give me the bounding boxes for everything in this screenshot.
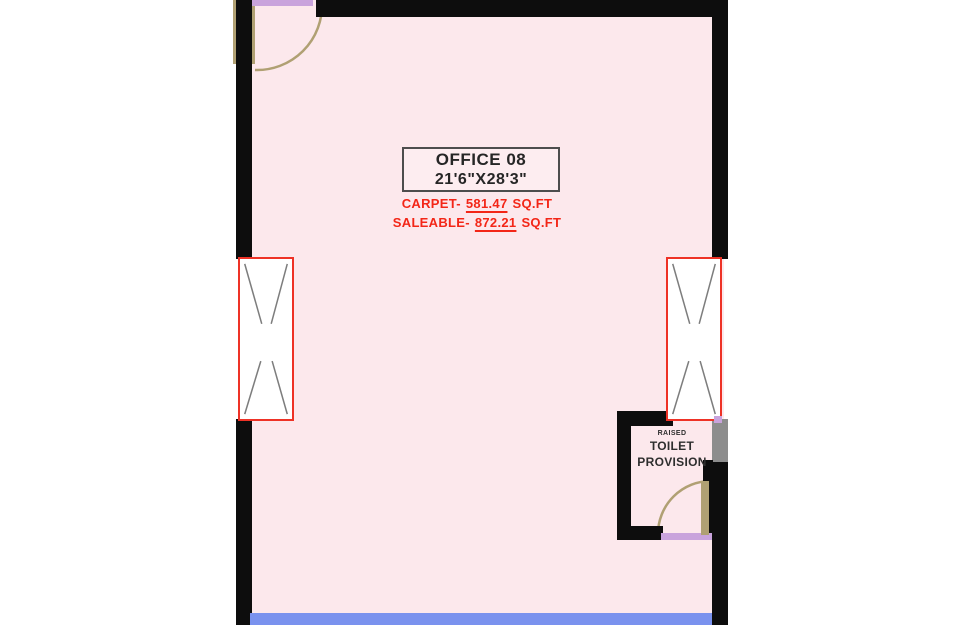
entry-door-opening <box>249 0 313 6</box>
wall-right-lower <box>712 462 728 625</box>
wall-left-upper <box>236 0 252 259</box>
saleable-label: SALEABLE- <box>393 215 470 230</box>
window-symbol-right <box>666 257 722 421</box>
wall-right-upper <box>712 0 728 259</box>
room-label-box: OFFICE 08 21'6"X28'3" <box>402 147 560 192</box>
carpet-unit: SQ.FT <box>512 196 552 211</box>
bottom-boundary-line <box>250 613 712 625</box>
saleable-unit: SQ.FT <box>521 215 561 230</box>
toilet-note-text: RAISED <box>629 429 715 438</box>
saleable-value: 872.21 <box>475 215 517 230</box>
toilet-label: RAISED TOILET PROVISION <box>629 429 715 470</box>
toilet-name-line1: TOILET <box>629 438 715 454</box>
toilet-door-leaf <box>701 481 709 535</box>
toilet-wall-bottom <box>617 526 663 540</box>
room-name: OFFICE 08 <box>436 150 526 170</box>
floor-plan-canvas: RAISED TOILET PROVISION OFFICE 08 21'6"X… <box>0 0 957 625</box>
window-right-corner-marker <box>714 416 722 423</box>
saleable-area-annotation: SALEABLE-872.21SQ.FT <box>337 215 617 230</box>
window-symbol-left <box>238 257 294 421</box>
room-dimensions: 21'6"X28'3" <box>435 170 527 189</box>
wall-top <box>316 0 728 17</box>
carpet-area-annotation: CARPET-581.47SQ.FT <box>337 196 617 211</box>
wall-left-lower <box>236 419 252 625</box>
window-glazing-lines <box>668 259 720 419</box>
carpet-value: 581.47 <box>466 196 508 211</box>
window-glazing-lines <box>240 259 292 419</box>
carpet-label: CARPET- <box>402 196 461 211</box>
toilet-name-line2: PROVISION <box>629 454 715 470</box>
